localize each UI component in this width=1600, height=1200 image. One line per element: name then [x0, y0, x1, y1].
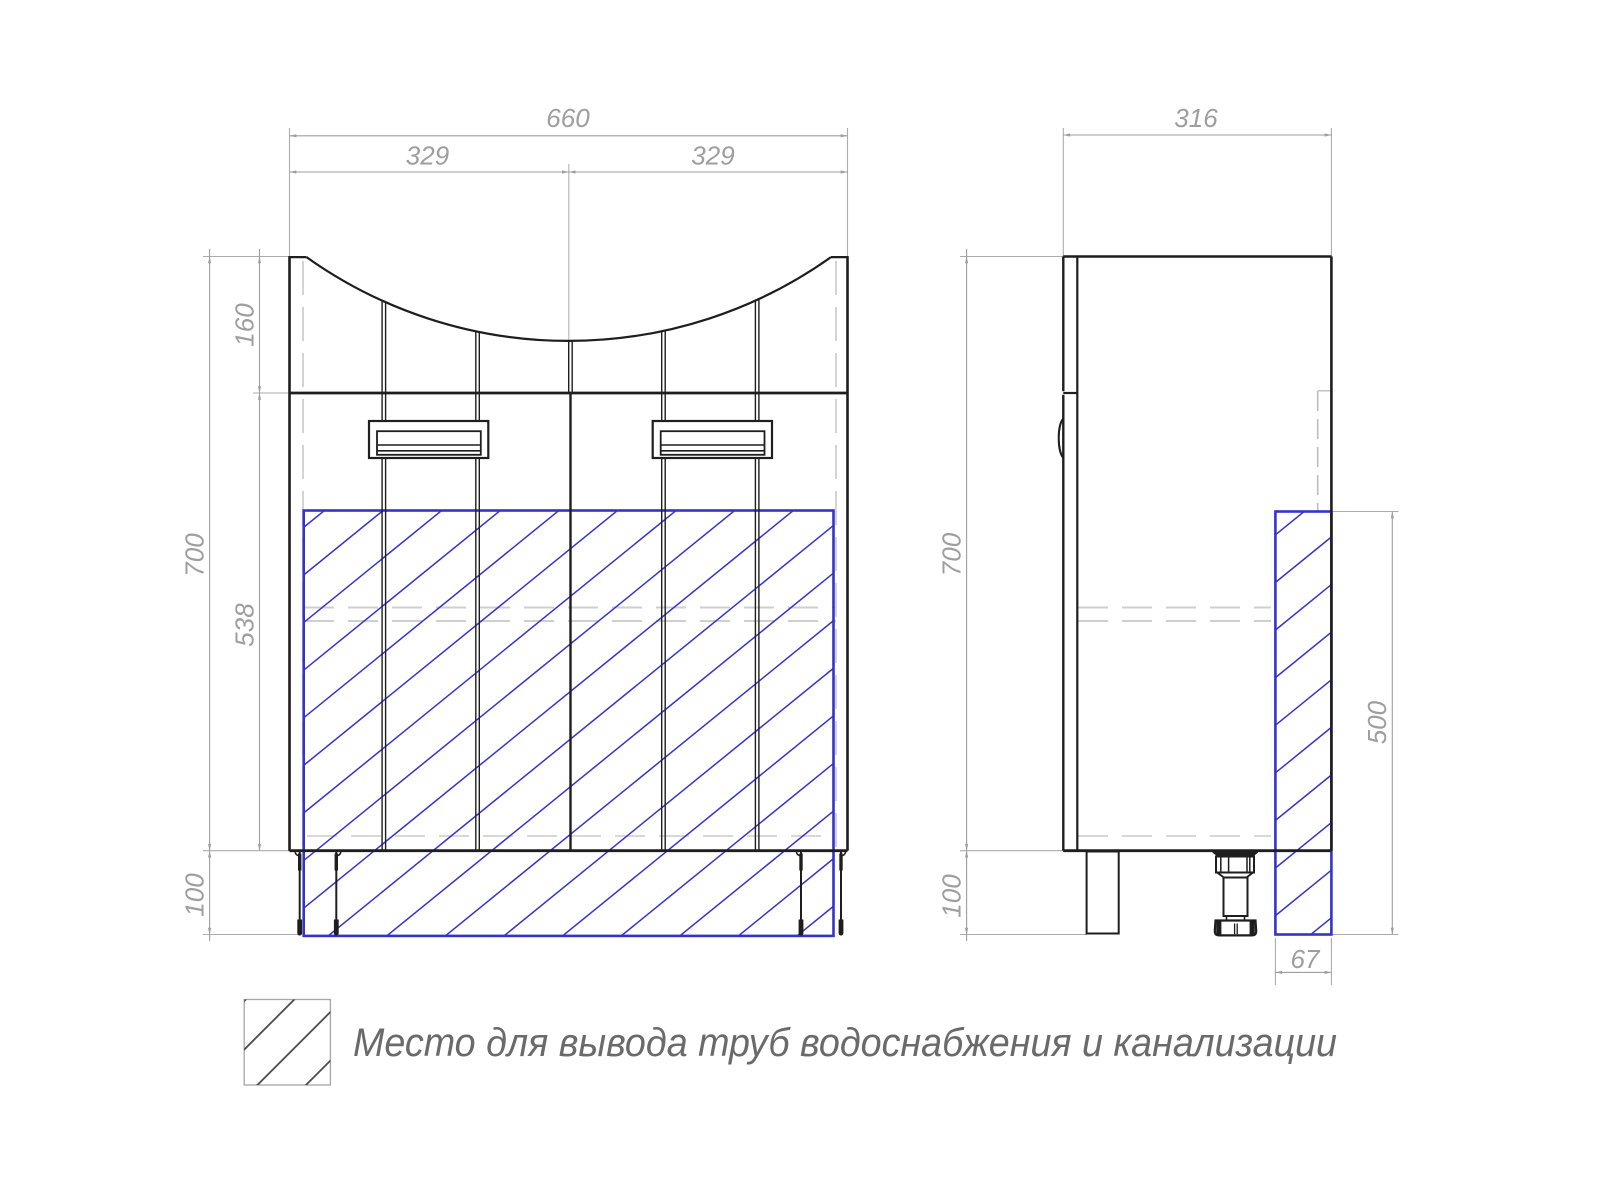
- svg-text:329: 329: [406, 141, 449, 171]
- svg-text:329: 329: [691, 141, 734, 171]
- svg-text:160: 160: [229, 303, 259, 347]
- svg-text:700: 700: [937, 532, 967, 576]
- svg-text:Место для вывода труб водоснаб: Место для вывода труб водоснабжения и ка…: [353, 1021, 1337, 1065]
- svg-text:500: 500: [1362, 700, 1392, 744]
- svg-text:67: 67: [1291, 944, 1321, 974]
- svg-text:100: 100: [180, 873, 210, 917]
- svg-text:660: 660: [546, 103, 590, 133]
- svg-text:538: 538: [229, 603, 259, 647]
- svg-text:700: 700: [180, 533, 210, 577]
- svg-text:100: 100: [937, 874, 967, 918]
- svg-text:316: 316: [1174, 103, 1218, 133]
